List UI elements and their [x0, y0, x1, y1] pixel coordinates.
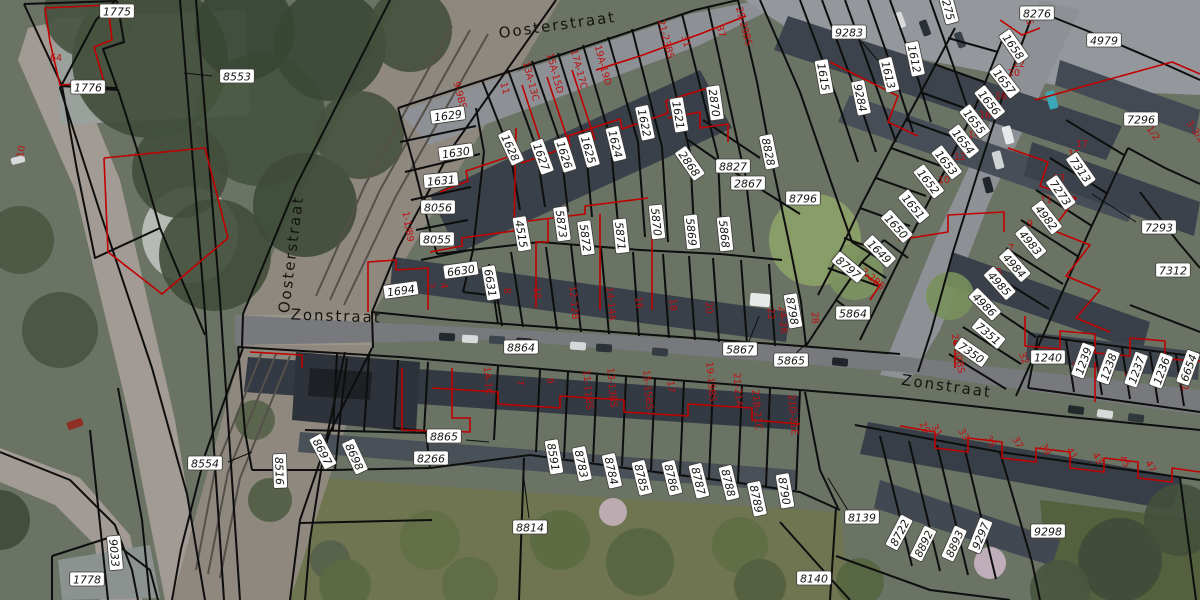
parcel-label-8140: 8140	[797, 571, 832, 586]
street-name-label: Zonstraat	[290, 305, 382, 326]
cadastral-map-canvas[interactable]: OosterstraatOosterstraatZonstraatZonstra…	[0, 0, 1200, 600]
tree	[606, 528, 674, 596]
parcel-label-8056: 8056	[421, 200, 456, 215]
parcel-label-1240: 1240	[1031, 350, 1066, 365]
parcel-label-7296: 7296	[1124, 112, 1159, 127]
parcel-number-text: 7312	[1159, 265, 1187, 278]
parcel-label-8814: 8814	[513, 520, 548, 535]
parcel-label-1631: 1631	[423, 172, 459, 189]
house-number-label: 16	[632, 296, 644, 309]
house-number-label: 17	[664, 380, 676, 393]
house-number-label: 22	[764, 307, 776, 320]
parked-car	[652, 347, 669, 356]
tree	[530, 510, 590, 570]
parcel-number-text: 8864	[507, 342, 535, 355]
tree	[316, 91, 404, 179]
parcel-number-text: 9033	[106, 538, 121, 567]
parcel-boundary-line	[242, 314, 243, 348]
parcel-number-text: 5865	[777, 355, 805, 368]
parcel-label-8055: 8055	[420, 232, 455, 247]
house-number-label: 10	[15, 145, 28, 159]
parcel-number-text: 7296	[1127, 114, 1155, 127]
parcel-label-1776: 1776	[71, 80, 106, 95]
parcel-label-5867: 5867	[723, 342, 758, 357]
parcel-label-1775: 1775	[100, 4, 135, 19]
house-number-label: 4	[438, 282, 449, 289]
cadastral-map-viewport[interactable]: OosterstraatOosterstraatZonstraatZonstra…	[0, 0, 1200, 600]
parcel-label-7312: 7312	[1156, 263, 1191, 278]
parcel-label-9283: 9283	[832, 25, 867, 40]
parked-car	[596, 343, 613, 352]
parcel-number-text: 8266	[417, 453, 445, 466]
parcel-label-8554: 8554	[188, 456, 223, 471]
parcel-number-text: 8553	[223, 71, 251, 84]
parcel-number-text: 1240	[1034, 352, 1062, 365]
tree	[132, 122, 228, 218]
parcel-label-2867: 2867	[731, 176, 766, 191]
parcel-number-text: 8516	[272, 457, 286, 485]
parcel-label-9033: 9033	[106, 535, 123, 571]
parcel-label-8516: 8516	[272, 453, 288, 488]
parcel-number-text: 8139	[848, 512, 876, 525]
parcel-number-text: 5864	[839, 308, 867, 321]
tree	[599, 498, 627, 526]
parcel-label-8827: 8827	[716, 159, 751, 174]
tree	[926, 272, 974, 320]
house-number-label: 28	[808, 311, 820, 324]
parcel-number-text: 1776	[74, 82, 102, 95]
parcel-label-5865: 5865	[774, 353, 809, 368]
parcel-label-8276: 8276	[1020, 6, 1055, 21]
parked-car	[749, 293, 770, 308]
parcel-number-text: 5867	[726, 344, 754, 357]
house-number-label: 10	[530, 286, 542, 299]
parcel-number-text: 9283	[835, 27, 863, 40]
parcel-number-text: 1778	[73, 574, 101, 587]
parcel-label-7293: 7293	[1142, 220, 1177, 235]
parcel-label-8266: 8266	[414, 451, 449, 466]
parcel-number-text: 1631	[426, 173, 455, 188]
house-number-label: 20	[702, 301, 714, 314]
house-number-label: 8	[501, 287, 512, 294]
parcel-label-5864: 5864	[836, 306, 871, 321]
parcel-number-text: 8865	[430, 431, 458, 444]
parcel-number-text: 9298	[1034, 526, 1062, 539]
parked-car	[439, 333, 455, 342]
parcel-number-text: 8814	[516, 522, 544, 535]
parcel-label-1778: 1778	[70, 572, 105, 587]
parcel-label-8553: 8553	[220, 69, 255, 84]
tree	[22, 292, 98, 368]
parcel-number-text: 8276	[1023, 8, 1051, 21]
parcel-number-text: 8554	[191, 458, 219, 471]
parcel-number-text: 4979	[1090, 35, 1118, 48]
house-number-label: 2	[425, 282, 436, 289]
parcel-number-text: 7293	[1145, 222, 1173, 235]
house-number-label: 18	[666, 298, 678, 311]
parked-car	[832, 357, 849, 367]
house-number-label: 64	[50, 53, 62, 64]
parcel-label-8864: 8864	[504, 340, 539, 355]
house-number-label: 9	[544, 377, 555, 384]
parcel-number-text: 1775	[103, 6, 131, 19]
parked-car	[462, 335, 478, 344]
parcel-number-text: 8827	[719, 161, 747, 174]
parcel-label-9298: 9298	[1031, 524, 1066, 539]
parcel-number-text: 8796	[789, 193, 817, 206]
parcel-number-text: 2867	[734, 178, 762, 191]
parcel-number-text: 8056	[424, 202, 452, 215]
parked-car	[489, 335, 506, 344]
parcel-number-text: 8140	[800, 573, 828, 586]
parcel-label-8796: 8796	[786, 191, 821, 206]
parcel-label-8139: 8139	[845, 510, 880, 525]
parked-car	[570, 341, 587, 350]
parcel-label-4979: 4979	[1087, 33, 1122, 48]
parcel-label-8865: 8865	[427, 429, 462, 444]
tree	[400, 510, 460, 570]
house-number-label: 7	[514, 379, 525, 386]
parcel-number-text: 8055	[423, 234, 451, 247]
